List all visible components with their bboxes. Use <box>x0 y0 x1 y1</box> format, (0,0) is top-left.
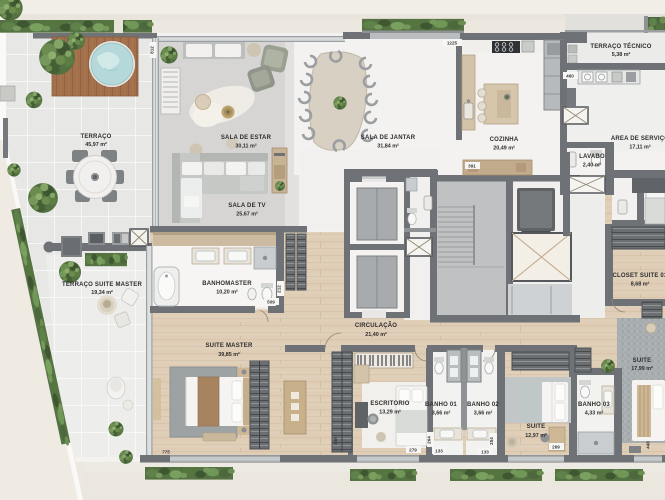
svg-text:SALA DE JANTAR: SALA DE JANTAR <box>361 135 416 141</box>
svg-text:812: 812 <box>149 46 154 54</box>
svg-text:17,99 m²: 17,99 m² <box>631 366 653 372</box>
svg-text:TERRAÇO TÉCNICO: TERRAÇO TÉCNICO <box>590 42 651 50</box>
svg-text:133: 133 <box>435 449 443 454</box>
svg-text:1225: 1225 <box>447 41 458 46</box>
svg-text:5,38 m²: 5,38 m² <box>612 52 631 58</box>
svg-text:12,97 m²: 12,97 m² <box>525 433 547 439</box>
svg-text:775: 775 <box>162 450 170 455</box>
svg-text:ESCRITORIO: ESCRITORIO <box>370 401 409 407</box>
svg-text:SALA DE ESTAR: SALA DE ESTAR <box>221 135 272 141</box>
svg-text:31,84 m²: 31,84 m² <box>377 144 399 150</box>
svg-text:448: 448 <box>333 437 338 445</box>
svg-text:133: 133 <box>481 450 489 455</box>
svg-text:BANHO 03: BANHO 03 <box>578 402 610 408</box>
svg-text:19,34 m²: 19,34 m² <box>91 290 113 296</box>
svg-text:448: 448 <box>646 441 651 449</box>
svg-text:39,85 m²: 39,85 m² <box>218 352 240 358</box>
svg-text:8,68 m²: 8,68 m² <box>631 282 650 288</box>
svg-text:SUITE: SUITE <box>527 424 546 430</box>
svg-text:3,66 m²: 3,66 m² <box>432 411 451 417</box>
svg-text:BANHO 01: BANHO 01 <box>425 402 457 408</box>
svg-text:25,67 m²: 25,67 m² <box>236 212 258 218</box>
svg-text:LAVABO: LAVABO <box>579 154 605 160</box>
svg-text:391: 391 <box>468 164 476 169</box>
svg-text:20,49 m²: 20,49 m² <box>493 146 515 152</box>
svg-text:SALA DE TV: SALA DE TV <box>228 203 265 209</box>
svg-text:45,97 m²: 45,97 m² <box>85 142 107 148</box>
svg-text:3,66 m²: 3,66 m² <box>474 411 493 417</box>
svg-text:COZINHA: COZINHA <box>490 137 519 143</box>
svg-text:SUITE MASTER: SUITE MASTER <box>205 343 253 349</box>
svg-text:AREA DE SERVIÇO: AREA DE SERVIÇO <box>611 136 665 142</box>
svg-text:4,33 m²: 4,33 m² <box>585 411 604 417</box>
svg-text:BANHO 02: BANHO 02 <box>467 402 499 408</box>
svg-text:264: 264 <box>427 436 432 444</box>
svg-text:509: 509 <box>267 300 275 305</box>
svg-text:2,40 m²: 2,40 m² <box>583 163 602 169</box>
svg-text:30,11 m²: 30,11 m² <box>235 144 256 150</box>
svg-text:13,29 m²: 13,29 m² <box>379 410 401 416</box>
svg-text:TERRAÇO: TERRAÇO <box>80 134 111 140</box>
svg-text:254: 254 <box>489 437 494 445</box>
svg-text:SUITE: SUITE <box>633 358 652 364</box>
svg-text:212: 212 <box>277 285 282 293</box>
svg-text:10,20 m²: 10,20 m² <box>216 290 238 296</box>
svg-text:17,11 m²: 17,11 m² <box>629 145 650 151</box>
svg-text:279: 279 <box>409 448 417 453</box>
svg-text:TERRAÇO SUITE MASTER: TERRAÇO SUITE MASTER <box>62 282 142 288</box>
svg-text:269: 269 <box>552 445 560 450</box>
svg-text:CLOSET SUITE 03: CLOSET SUITE 03 <box>612 273 665 279</box>
svg-text:BANHOMASTER: BANHOMASTER <box>202 281 252 287</box>
svg-text:460: 460 <box>566 74 574 79</box>
svg-text:CIRCULAÇÃO: CIRCULAÇÃO <box>355 322 397 329</box>
svg-text:21,40 m²: 21,40 m² <box>365 332 387 338</box>
